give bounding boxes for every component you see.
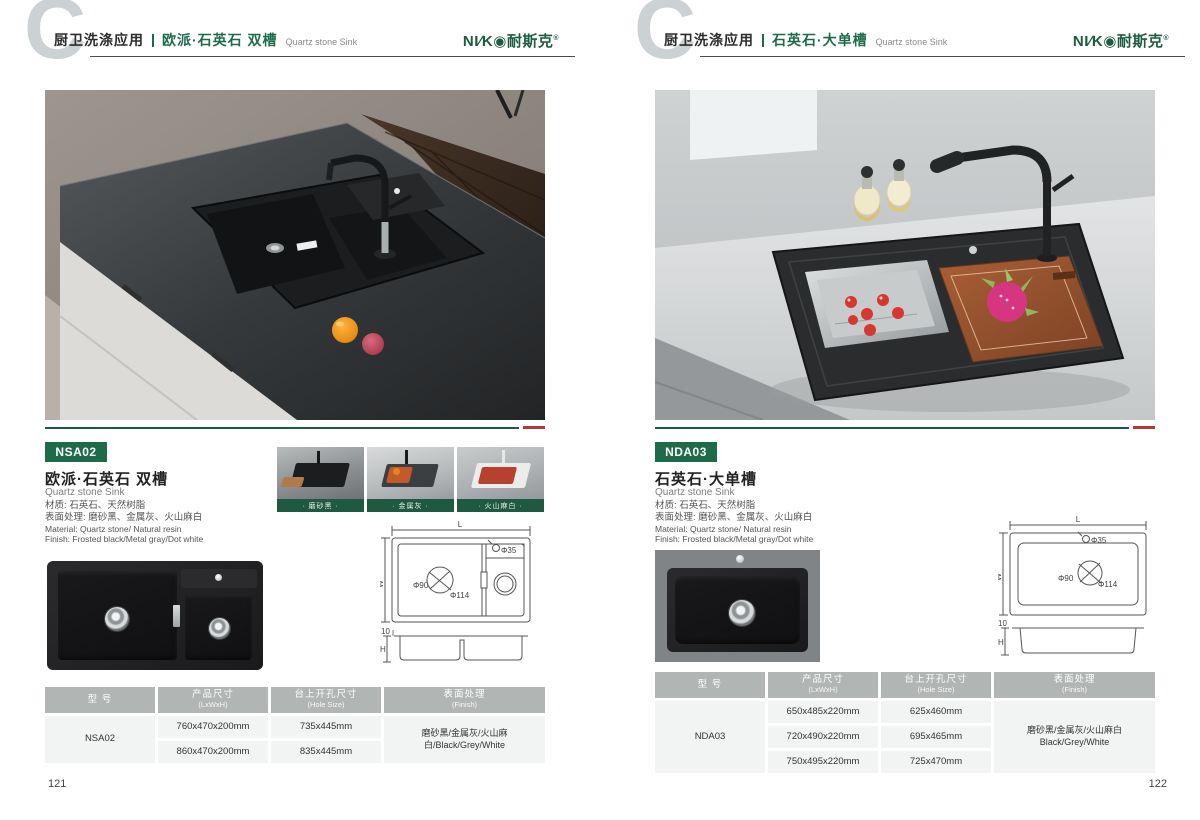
- brand-logo-reg: ®: [553, 35, 559, 42]
- brand-logo-reg: ®: [1163, 35, 1169, 42]
- swatch-frosted-black: · 磨砂黑 ·: [277, 447, 364, 512]
- header-title: 石英石·大单槽: [772, 30, 868, 50]
- product-title: 石英石·大单槽: [655, 468, 757, 489]
- product-render-single-sink: [655, 550, 820, 662]
- page-header: 厨卫洗涤应用 石英石·大单槽 Quartz stone Sink: [664, 30, 947, 50]
- cell-hole: 725x470mm: [881, 751, 991, 773]
- spec-table: 型 号 产品尺寸(LxWxH) 台上开孔尺寸(Hole Size) 表面处理(F…: [655, 672, 1155, 773]
- spec-material-en: Material: Quartz stone/ Natural resin: [45, 524, 203, 534]
- page-header: 厨卫洗涤应用 欧派·石英石 双槽 Quartz stone Sink: [54, 30, 357, 50]
- product-render-double-sink: [45, 557, 265, 682]
- spec-finish-en: Finish: Frosted black/Metal gray/Dot whi…: [655, 534, 813, 544]
- dim-H: H: [380, 645, 386, 654]
- swatch-label: · 火山麻白 ·: [457, 499, 544, 512]
- spec-finish-en: Finish: Frosted black/Metal gray/Dot whi…: [45, 534, 203, 544]
- section-divider-red: [523, 426, 545, 429]
- spec-material-cn: 材质: 石英石、天然树脂: [45, 500, 203, 512]
- page-number: 121: [48, 778, 66, 790]
- cell-hole: 735x445mm: [271, 716, 381, 738]
- swatch-dot-white: · 火山麻白 ·: [457, 447, 544, 512]
- product-subtitle: Quartz stone Sink: [45, 487, 124, 498]
- page-number: 122: [1149, 778, 1167, 790]
- cell-model: NSA02: [45, 716, 155, 763]
- dim-L: L: [1076, 515, 1081, 524]
- cell-model: NDA03: [655, 701, 765, 773]
- faucet-hole: [736, 555, 744, 563]
- dim-drain114: Φ114: [1098, 580, 1118, 589]
- cell-hole: 695x465mm: [881, 726, 991, 748]
- header-rule: [700, 56, 1185, 57]
- product-title: 欧派·石英石 双槽: [45, 468, 168, 489]
- spec-material-cn: 材质: 石英石、天然树脂: [655, 500, 813, 512]
- dim-edge: 10: [998, 619, 1007, 628]
- cell-size: 760x470x200mm: [158, 716, 268, 738]
- header-category: 厨卫洗涤应用: [54, 30, 144, 50]
- spec-finish-cn: 表面处理: 磨砂黑、金属灰、火山麻白: [45, 512, 203, 524]
- drain-center: [729, 600, 755, 626]
- main-photo-single-sink: [655, 90, 1155, 420]
- dim-W: W: [380, 580, 385, 588]
- col-header-model: 型 号: [45, 687, 155, 713]
- dim-edge: 10: [381, 627, 390, 636]
- spec-material-en: Material: Quartz stone/ Natural resin: [655, 524, 813, 534]
- dim-H: H: [998, 638, 1004, 647]
- col-header-model: 型 号: [655, 672, 765, 698]
- swatch-metal-gray: · 金属灰 ·: [367, 447, 454, 512]
- section-divider-green: [655, 427, 1129, 429]
- model-badge: NSA02: [45, 442, 107, 462]
- main-photo-double-sink: [45, 90, 545, 420]
- header-rule: [90, 56, 575, 57]
- cell-finish: 磨砂黑/金属灰/火山麻白/Black/Grey/White: [384, 716, 545, 763]
- col-header-size: 产品尺寸(LxWxH): [158, 687, 268, 713]
- drain-right: [209, 618, 230, 639]
- brand-logo: NI∕K◉耐斯克®: [463, 30, 559, 51]
- window-glow: [690, 90, 817, 160]
- product-subtitle: Quartz stone Sink: [655, 487, 734, 498]
- control-dot: [969, 246, 977, 254]
- cell-size: 750x495x220mm: [768, 751, 878, 773]
- section-divider-green: [45, 427, 519, 429]
- product-specs: 材质: 石英石、天然树脂 表面处理: 磨砂黑、金属灰、火山麻白 Material…: [655, 500, 813, 544]
- dim-hole35: Φ35: [501, 546, 517, 555]
- dim-W: W: [998, 573, 1003, 581]
- dim-L: L: [458, 520, 463, 529]
- model-badge: NDA03: [655, 442, 717, 462]
- brand-logo-text: NI∕K◉耐斯克: [1073, 33, 1163, 50]
- header-category: 厨卫洗涤应用: [664, 30, 754, 50]
- dim-drain90: Φ90: [413, 581, 429, 590]
- dim-drain90: Φ90: [1058, 574, 1074, 583]
- brand-logo: NI∕K◉耐斯克®: [1073, 30, 1169, 51]
- spec-table: 型 号 产品尺寸(LxWxH) 台上开孔尺寸(Hole Size) 表面处理(F…: [45, 687, 545, 763]
- brand-logo-text: NI∕K◉耐斯克: [463, 33, 553, 50]
- header-title: 欧派·石英石 双槽: [162, 30, 278, 50]
- catalog-page-right: C 厨卫洗涤应用 石英石·大单槽 Quartz stone Sink NI∕K◉…: [640, 0, 1185, 820]
- col-header-finish: 表面处理(Finish): [994, 672, 1155, 698]
- swatch-label: · 磨砂黑 ·: [277, 499, 364, 512]
- col-header-finish: 表面处理(Finish): [384, 687, 545, 713]
- col-header-hole: 台上开孔尺寸(Hole Size): [271, 687, 381, 713]
- section-divider-red: [1133, 426, 1155, 429]
- col-header-size: 产品尺寸(LxWxH): [768, 672, 878, 698]
- cell-finish: 磨砂黑/金属灰/火山麻白 Black/Grey/White: [994, 701, 1155, 773]
- color-swatches: · 磨砂黑 · · 金属灰 · · 火山麻白 ·: [277, 447, 545, 512]
- cell-hole: 835x445mm: [271, 741, 381, 763]
- spec-finish-cn: 表面处理: 磨砂黑、金属灰、火山麻白: [655, 512, 813, 524]
- header-divider: [762, 34, 764, 47]
- dimension-drawing-single: L W H 10 Φ35 Φ90 Φ114: [998, 515, 1158, 660]
- header-subtitle: Quartz stone Sink: [876, 37, 948, 47]
- header-divider: [152, 34, 154, 47]
- faucet-hole-dot: [394, 188, 400, 194]
- cell-size: 860x470x200mm: [158, 741, 268, 763]
- cell-size: 650x485x220mm: [768, 701, 878, 723]
- swatch-label: · 金属灰 ·: [367, 499, 454, 512]
- header-subtitle: Quartz stone Sink: [286, 37, 358, 47]
- cell-size: 720x490x220mm: [768, 726, 878, 748]
- dimension-drawing-double: L W H 10 Φ35 Φ90 Φ114: [380, 518, 550, 668]
- product-specs: 材质: 石英石、天然树脂 表面处理: 磨砂黑、金属灰、火山麻白 Material…: [45, 500, 203, 544]
- col-header-hole: 台上开孔尺寸(Hole Size): [881, 672, 991, 698]
- drain-left: [105, 607, 129, 631]
- dim-drain114: Φ114: [450, 591, 470, 600]
- divider-tag: [173, 605, 180, 627]
- dim-hole35: Φ35: [1091, 536, 1107, 545]
- cell-hole: 625x460mm: [881, 701, 991, 723]
- spray-head: [937, 158, 957, 166]
- catalog-page-left: C 厨卫洗涤应用 欧派·石英石 双槽 Quartz stone Sink NI∕…: [30, 0, 575, 820]
